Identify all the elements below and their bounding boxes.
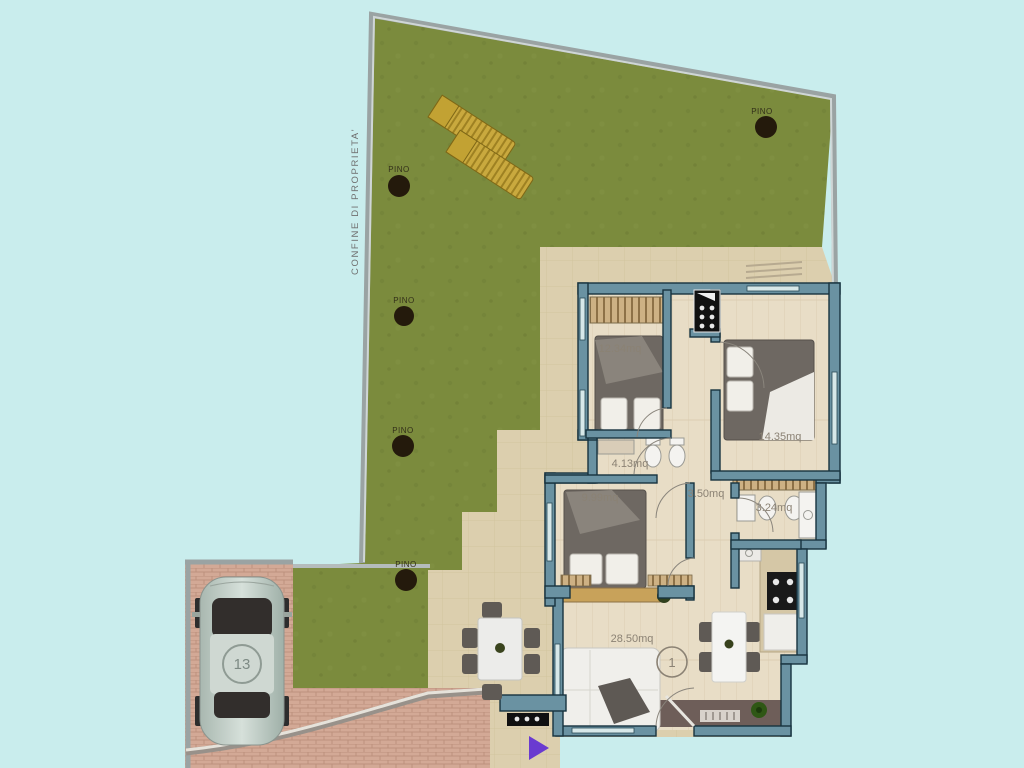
window: [580, 298, 585, 340]
chair: [524, 628, 540, 648]
wardrobe: [590, 297, 664, 323]
mirror: [283, 612, 292, 617]
room-label-bedroom3: 9.99mq: [582, 492, 619, 504]
pine-tree-icon: [755, 116, 777, 138]
window: [799, 563, 804, 618]
shower: [799, 492, 817, 538]
table-plant: [725, 640, 734, 649]
burner: [787, 579, 793, 585]
sideboard: [562, 588, 660, 602]
wall: [781, 664, 791, 736]
wall: [658, 586, 694, 598]
radiator: [561, 575, 591, 586]
unit-number: 1: [668, 655, 675, 670]
rear-window: [214, 692, 270, 718]
chair: [462, 628, 478, 648]
pillow: [727, 347, 753, 377]
table-plant: [495, 643, 505, 653]
cooktop: [767, 572, 797, 610]
pine-tree-icon: [392, 435, 414, 457]
chair: [482, 602, 502, 618]
wall: [545, 475, 657, 483]
chair: [524, 654, 540, 674]
pine-tree-icon: [394, 306, 414, 326]
wall: [663, 290, 671, 408]
car: 13: [192, 577, 292, 745]
burner: [773, 597, 779, 603]
wall: [781, 655, 807, 664]
pine-tree-icon: [388, 175, 410, 197]
window: [572, 728, 634, 733]
electrical-panel: [694, 290, 720, 332]
room-label-bathroom1: 4.13mq: [612, 458, 649, 470]
bath-cabinet: [598, 440, 634, 454]
entry-stub-wall: [500, 695, 566, 711]
pillow: [606, 554, 638, 584]
pillow: [601, 398, 627, 430]
tree-label: PINO: [751, 107, 773, 116]
wall: [545, 586, 570, 598]
bedroom2-furniture: [724, 340, 814, 440]
windshield: [212, 598, 272, 638]
toilet-tank: [646, 438, 660, 445]
chair: [745, 622, 760, 642]
floor-plan-image: PINO PINO PINO PINO PINO CONFINE DI PROP…: [0, 0, 1024, 768]
room-label-living: 28.50mq: [611, 633, 654, 645]
chair: [462, 654, 478, 674]
wall: [586, 430, 671, 438]
intercom-button: [525, 717, 530, 722]
window: [747, 286, 799, 291]
room-label-bathroom2: 3.24mq: [756, 502, 793, 514]
mirror: [192, 612, 201, 617]
car-number: 13: [234, 656, 251, 673]
kitchen-worktop: [764, 614, 797, 650]
wall: [731, 540, 801, 549]
intercom-button: [535, 717, 540, 722]
wall: [711, 471, 840, 480]
wall: [816, 483, 826, 548]
entry-plant-core: [756, 707, 762, 713]
tree-label: PINO: [388, 165, 410, 174]
tree-label: PINO: [393, 296, 415, 305]
room-label-bedroom1: 12.34mq: [599, 343, 642, 355]
chair: [482, 684, 502, 700]
floor-plan-svg: PINO PINO PINO PINO PINO CONFINE DI PROP…: [0, 0, 1024, 768]
wall: [731, 483, 739, 498]
bedroom1-furniture: [590, 297, 664, 434]
pillow: [727, 381, 753, 411]
burner: [787, 597, 793, 603]
wall: [694, 726, 791, 736]
boundary-label: CONFINE DI PROPRIETA': [350, 128, 361, 275]
chair: [745, 652, 760, 672]
pillow: [634, 398, 660, 430]
tree-label: PINO: [395, 560, 417, 569]
window: [547, 503, 552, 561]
pine-tree-icon: [395, 569, 417, 591]
wall: [711, 390, 720, 473]
bidet: [669, 445, 685, 467]
window: [580, 390, 585, 436]
tree-label: PINO: [392, 426, 414, 435]
intercom-button: [515, 717, 520, 722]
burner: [773, 579, 779, 585]
room-label-bedroom2: 14.35mq: [759, 431, 802, 443]
room-label-hallway: 3.50mq: [688, 488, 725, 500]
window: [832, 372, 837, 444]
bidet-tank: [670, 438, 684, 445]
